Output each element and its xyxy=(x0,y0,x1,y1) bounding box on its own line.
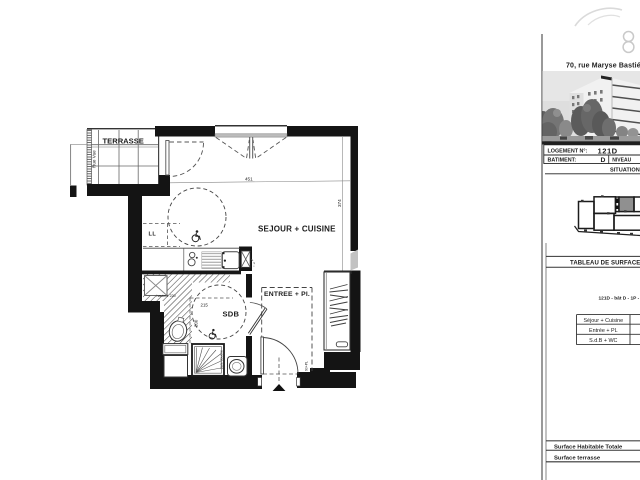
svg-text:Entrée + PL: Entrée + PL xyxy=(589,328,618,334)
svg-text:70, rue Maryse Bastié -: 70, rue Maryse Bastié - xyxy=(566,62,640,69)
svg-text:Séjour + Cuisine: Séjour + Cuisine xyxy=(583,318,623,324)
svg-text:SITUATION: SITUATION xyxy=(610,168,640,174)
svg-text:451: 451 xyxy=(245,176,253,181)
svg-text:S.d.B + WC: S.d.B + WC xyxy=(589,338,617,344)
svg-text:215: 215 xyxy=(201,303,209,308)
svg-text:TERRASSE: TERRASSE xyxy=(103,136,144,145)
svg-text:Surface terrasse: Surface terrasse xyxy=(554,456,601,462)
svg-text:Rue Vue: Rue Vue xyxy=(92,150,97,168)
svg-text:hauteur 220: hauteur 220 xyxy=(157,294,176,298)
svg-text:NIVEAU: NIVEAU xyxy=(612,157,631,163)
svg-text:TABLEAU DE SURFACES (: TABLEAU DE SURFACES ( xyxy=(570,260,640,266)
svg-text:121D - bât D - 1P -: 121D - bât D - 1P - xyxy=(599,296,640,302)
svg-text:pare douche: pare douche xyxy=(220,350,224,369)
svg-text:BATIMENT:: BATIMENT: xyxy=(548,158,577,164)
svg-text:LOGEMENT N°:: LOGEMENT N°: xyxy=(548,148,588,154)
svg-text:90+PL: 90+PL xyxy=(305,361,309,371)
svg-text:374: 374 xyxy=(337,199,342,207)
svg-text:ENTREE + Pl.: ENTREE + Pl. xyxy=(264,291,310,298)
svg-text:Surface Habitable Totale: Surface Habitable Totale xyxy=(554,444,623,450)
svg-text:SDB: SDB xyxy=(223,310,240,319)
svg-text:D: D xyxy=(601,157,606,164)
svg-text:121D: 121D xyxy=(598,146,618,155)
svg-text:LL: LL xyxy=(149,232,157,238)
svg-text:SEJOUR + CUISINE: SEJOUR + CUISINE xyxy=(258,225,336,234)
